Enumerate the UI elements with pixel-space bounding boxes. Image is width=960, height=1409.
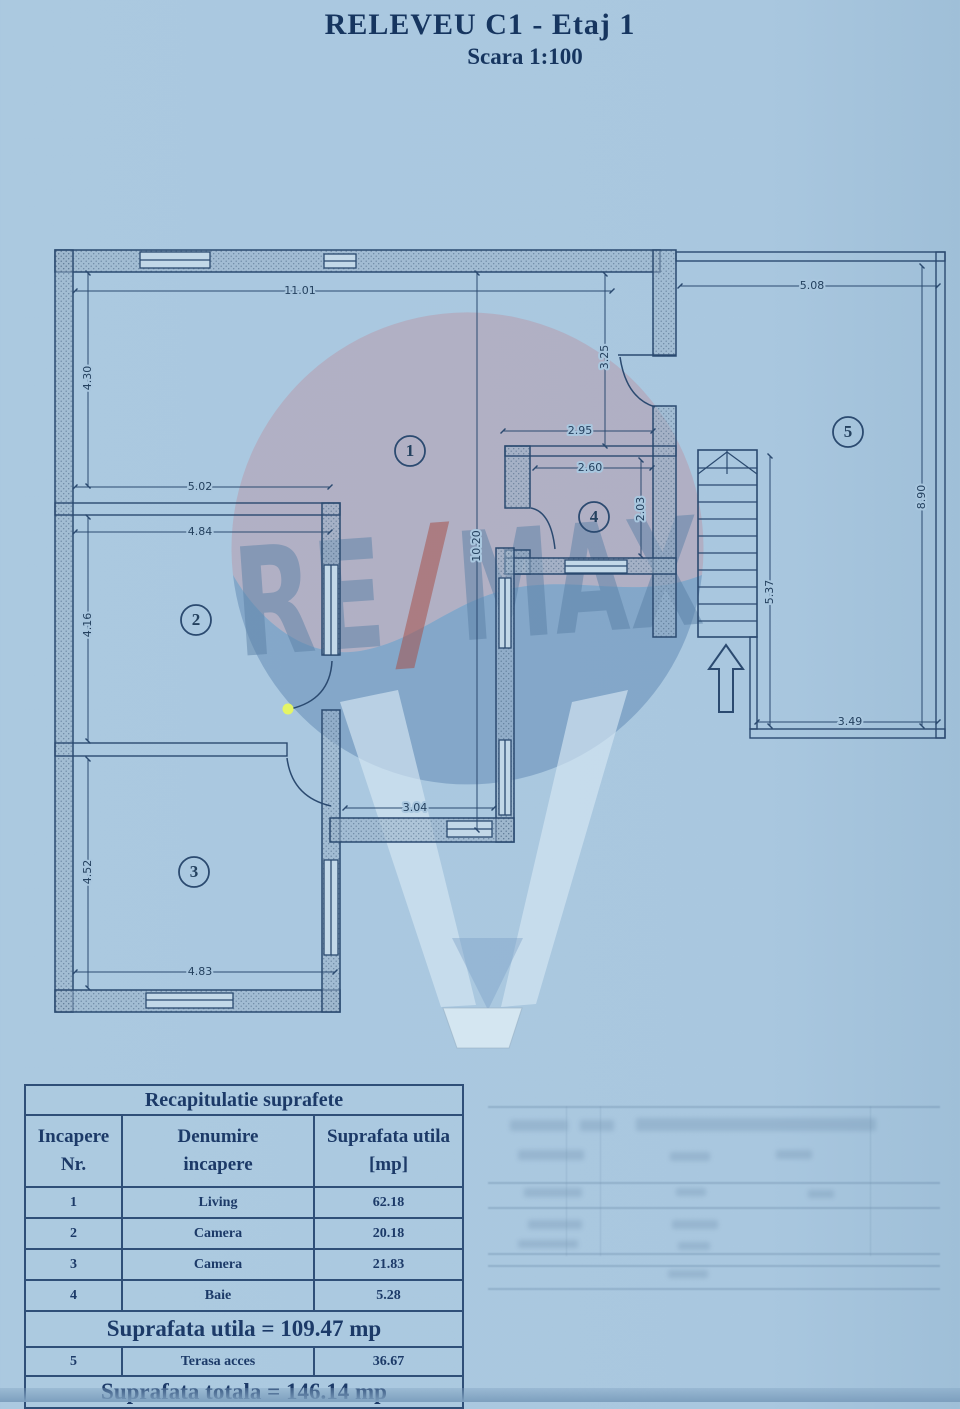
svg-text:5.37: 5.37 — [763, 580, 776, 605]
window-room3-bottom — [146, 993, 233, 1008]
room-label-2: 2 — [181, 605, 211, 635]
parapet-terrace-right — [936, 252, 945, 738]
table-row: 4 Baie 5.28 — [26, 1279, 462, 1310]
window-room3-right — [324, 860, 338, 955]
svg-text:4.83: 4.83 — [188, 965, 213, 978]
wall-living-terrace-upper — [653, 250, 676, 356]
wall-living-terrace-lower — [653, 406, 676, 637]
svg-text:3.04: 3.04 — [403, 801, 428, 814]
svg-text:3: 3 — [190, 862, 199, 881]
dimension-3-49: 3.49 — [757, 715, 938, 728]
room-label-5: 5 — [833, 417, 863, 447]
table-title: Recapitulatie suprafete — [26, 1086, 462, 1114]
dimension-4-16: 4.16 — [81, 517, 94, 741]
window-top-2 — [324, 254, 356, 268]
svg-text:4.84: 4.84 — [188, 525, 213, 538]
column-header-denumire: Denumire incapere — [123, 1116, 315, 1186]
table-title-row: Recapitulatie suprafete — [26, 1086, 462, 1114]
parapet-terrace-bottom — [750, 729, 945, 738]
dimension-4-30: 4.30 — [81, 273, 94, 486]
window-hall-bottom — [447, 821, 492, 837]
svg-text:5.08: 5.08 — [800, 279, 825, 292]
table-header-row: Incapere Nr. Denumire incapere Suprafata… — [26, 1114, 462, 1186]
dimension-11-01: 11.01 — [75, 284, 612, 297]
dimension-3-04: 3.04 — [345, 801, 494, 814]
subtotal-text: Suprafata utila = 109.47 mp — [26, 1312, 462, 1346]
dimension-4-83: 4.83 — [75, 965, 335, 978]
remax-balloon-watermark: RE / MAX — [227, 312, 708, 1048]
svg-text:4: 4 — [590, 507, 599, 526]
balloon-basket-icon — [443, 1008, 522, 1048]
door-hinge-dot — [283, 704, 294, 715]
window-bath-bottom — [565, 560, 627, 573]
svg-text:2.03: 2.03 — [634, 497, 647, 522]
column-header-suprafata: Suprafata utila [mp] — [315, 1116, 462, 1186]
table-row: 5 Terasa acces 36.67 — [26, 1346, 462, 1375]
column-header-incapere: Incapere Nr. — [26, 1116, 123, 1186]
wall-bath-left-upper — [505, 446, 530, 508]
dimension-5-37: 5.37 — [763, 456, 776, 726]
parapet-terrace-top — [676, 252, 945, 261]
svg-text:3.25: 3.25 — [598, 345, 611, 370]
svg-text:1: 1 — [406, 441, 415, 460]
subtotal-row: Suprafata utila = 109.47 mp — [26, 1310, 462, 1346]
table-row: 2 Camera 20.18 — [26, 1217, 462, 1248]
dimension-5-08: 5.08 — [680, 279, 938, 292]
svg-text:4.52: 4.52 — [81, 860, 94, 885]
ghost-table — [488, 1102, 940, 1294]
svg-text:5.02: 5.02 — [188, 480, 213, 493]
svg-text:4.30: 4.30 — [81, 366, 94, 391]
page-edge-shadow — [0, 1388, 960, 1402]
svg-text:2.60: 2.60 — [578, 461, 603, 474]
dimension-4-52: 4.52 — [81, 759, 94, 988]
window-hall-right-1 — [499, 578, 511, 648]
wall-left — [55, 250, 73, 1012]
window-hall-right-2 — [499, 740, 511, 815]
wall-room2-room3-divider — [55, 743, 287, 756]
room-label-3: 3 — [179, 857, 209, 887]
watermark-re-text: RE — [229, 508, 391, 692]
svg-text:3.49: 3.49 — [838, 715, 863, 728]
svg-text:11.01: 11.01 — [284, 284, 316, 297]
window-top-1 — [140, 252, 210, 268]
areas-summary-table: Recapitulatie suprafete Incapere Nr. Den… — [24, 1084, 464, 1409]
staircase — [698, 450, 757, 637]
svg-text:2: 2 — [192, 610, 201, 629]
svg-text:2.95: 2.95 — [568, 424, 593, 437]
dimension-8-90: 8.90 — [915, 266, 928, 726]
svg-text:5: 5 — [844, 422, 853, 441]
svg-text:8.90: 8.90 — [915, 485, 928, 510]
parapet-terrace-left — [750, 637, 757, 729]
window-room2-right — [324, 565, 338, 655]
svg-text:10.20: 10.20 — [470, 530, 483, 562]
svg-text:4.16: 4.16 — [81, 613, 94, 638]
table-row: 1 Living 62.18 — [26, 1186, 462, 1217]
table-row: 3 Camera 21.83 — [26, 1248, 462, 1279]
stairs-up-arrow-icon — [709, 645, 743, 712]
